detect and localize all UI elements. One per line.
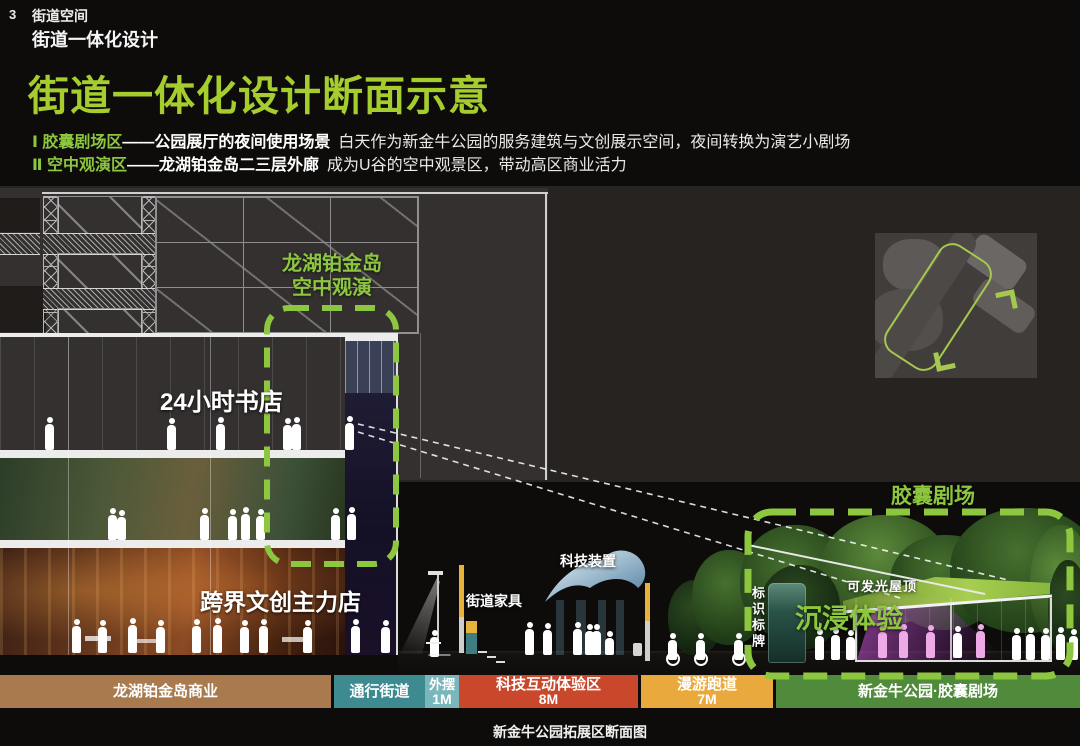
legend-label: 通行街道 xyxy=(349,684,409,699)
legend-segment-park: 新金牛公园·胶囊剧场 xyxy=(776,675,1080,708)
legend-size: 1M xyxy=(432,692,451,707)
person-silhouette xyxy=(167,425,176,450)
person-silhouette xyxy=(192,626,201,653)
cad-faint-line xyxy=(420,333,421,478)
person-silhouette xyxy=(345,423,354,450)
slide: 3 街道空间 街道一体化设计 街道一体化设计断面示意 Ⅰ 胶囊剧场区——公园展厅… xyxy=(0,0,1080,746)
street-lamp-head xyxy=(428,571,443,575)
person-silhouette xyxy=(216,424,225,450)
legend-segment-street: 通行街道 xyxy=(334,675,425,708)
cad-hatch-stub xyxy=(0,233,40,255)
page-title: 街道一体化设计断面示意 xyxy=(28,62,490,122)
person-silhouette xyxy=(240,627,249,653)
person-silhouette xyxy=(98,627,107,653)
cad-right-line xyxy=(545,192,547,480)
person-silhouette xyxy=(976,631,985,658)
person-silhouette xyxy=(72,626,81,653)
person-silhouette xyxy=(200,515,209,540)
site-plan-thumbnail xyxy=(875,233,1037,378)
person-silhouette xyxy=(1012,635,1021,660)
cad-hatch-band xyxy=(43,233,155,255)
legend-segment-outdoor: 外摆 1M xyxy=(425,675,459,708)
pole-base xyxy=(645,621,650,661)
floor-slab xyxy=(0,540,398,548)
yellow-pole xyxy=(645,583,650,621)
person-silhouette xyxy=(846,637,855,660)
floor-slab xyxy=(0,450,398,458)
floor-terrace xyxy=(0,458,345,540)
person-silhouette xyxy=(45,424,54,450)
person-silhouette xyxy=(128,625,137,653)
legend-label: 外摆 xyxy=(429,677,455,692)
person-silhouette xyxy=(241,514,250,540)
bullet-capsule-zone: Ⅰ 胶囊剧场区——公园展厅的夜间使用场景白天作为新金牛公园的服务建筑与文创展示空… xyxy=(32,128,850,152)
sky-viewing-label-line2: 空中观演 xyxy=(267,276,397,300)
trash-bin xyxy=(633,643,642,656)
capsule-theater-label: 胶囊剧场 xyxy=(868,480,998,510)
yellow-pole xyxy=(459,565,464,617)
person-silhouette xyxy=(1056,634,1065,660)
street-step xyxy=(487,656,496,658)
street-step xyxy=(496,661,505,663)
page-number: 3 xyxy=(9,7,16,22)
person-silhouette xyxy=(156,627,165,653)
street-step xyxy=(478,651,487,653)
legend-label: 科技互动体验区 xyxy=(496,677,601,692)
signage-label: 标识标牌 xyxy=(748,586,767,662)
immersive-experience-label: 沉浸体验 xyxy=(795,597,903,636)
person-silhouette xyxy=(303,627,312,653)
cad-top-line xyxy=(42,192,548,194)
legend-size: 8M xyxy=(539,692,558,707)
bullet-emphasis: ——龙湖铂金岛二三层外廊 xyxy=(127,157,319,174)
person-silhouette xyxy=(573,629,582,655)
person-silhouette xyxy=(953,633,962,658)
tech-installation-label: 科技装置 xyxy=(560,551,616,571)
bullet-zone-label: Ⅱ 空中观演区 xyxy=(32,157,127,174)
facade-grid-line xyxy=(68,337,69,655)
person-silhouette xyxy=(831,635,840,660)
section-caption: 新金牛公园拓展区断面图 xyxy=(410,722,730,742)
bollard-cap xyxy=(466,621,477,633)
person-silhouette xyxy=(259,626,268,653)
site-plan-corner-mark xyxy=(933,349,956,372)
person-silhouette xyxy=(926,632,935,658)
legend-segment-tech: 科技互动体验区 8M xyxy=(459,675,638,708)
person-silhouette xyxy=(525,629,534,655)
person-silhouette xyxy=(283,425,292,450)
bicycle-wheel xyxy=(666,652,680,666)
section-label: 街道空间 xyxy=(32,6,88,26)
legend-segment-runway: 漫游跑道 7M xyxy=(641,675,773,708)
person-silhouette xyxy=(605,638,614,655)
street-furniture-label: 街道家具 xyxy=(466,591,522,611)
site-plan-corner-mark xyxy=(995,289,1018,312)
tower-glazing xyxy=(345,341,398,393)
person-silhouette xyxy=(256,516,265,540)
person-silhouette xyxy=(381,627,390,653)
legend-label: 龙湖铂金岛商业 xyxy=(113,684,218,699)
sky-viewing-label-line1: 龙湖铂金岛 xyxy=(267,252,397,276)
bicycle-wheel xyxy=(732,652,746,666)
tech-light-beam xyxy=(616,600,624,655)
person-silhouette xyxy=(1041,635,1050,660)
tower-cap xyxy=(345,333,398,341)
bicycle-wheel xyxy=(694,652,708,666)
bullet-zone-label: Ⅰ 胶囊剧场区 xyxy=(32,134,122,151)
person-silhouette xyxy=(351,626,360,653)
subsection-label: 街道一体化设计 xyxy=(32,26,158,52)
person-silhouette xyxy=(1069,636,1078,660)
tower-edge-line xyxy=(396,341,398,655)
cad-window-row xyxy=(57,196,143,235)
stool xyxy=(426,642,441,644)
person-silhouette xyxy=(815,636,824,660)
sky-viewing-label: 龙湖铂金岛 空中观演 xyxy=(267,252,397,300)
person-silhouette xyxy=(292,424,301,450)
legend-label: 新金牛公园·胶囊剧场 xyxy=(858,684,998,699)
luminous-roof-label: 可发光屋顶 xyxy=(847,576,917,595)
person-silhouette xyxy=(331,515,340,540)
bullet-text: 成为U谷的空中观景区，带动高区商业活力 xyxy=(327,157,627,174)
legend-label: 漫游跑道 xyxy=(677,677,737,692)
cad-hatch-band xyxy=(43,288,155,310)
bookstore-label: 24小时书店 xyxy=(160,382,283,417)
person-silhouette xyxy=(213,625,222,653)
pole-base xyxy=(459,617,464,653)
bullet-emphasis: ——公园展厅的夜间使用场景 xyxy=(122,134,330,151)
person-silhouette xyxy=(430,637,439,657)
person-silhouette xyxy=(228,516,237,540)
legend-segment-commercial: 龙湖铂金岛商业 xyxy=(0,675,331,708)
flagship-label: 跨界文创主力店 xyxy=(200,583,361,617)
cad-block xyxy=(0,286,46,332)
legend-size: 7M xyxy=(697,692,716,707)
tech-light-beam xyxy=(556,600,564,655)
person-silhouette xyxy=(1026,634,1035,660)
cad-block xyxy=(0,198,40,232)
bullet-text: 白天作为新金牛公园的服务建筑与文创展示空间，夜间转换为演艺小剧场 xyxy=(338,134,850,151)
person-silhouette xyxy=(117,517,126,540)
bullet-sky-zone: Ⅱ 空中观演区——龙湖铂金岛二三层外廊成为U谷的空中观景区，带动高区商业活力 xyxy=(32,151,627,175)
person-silhouette xyxy=(108,515,117,540)
cad-window-row xyxy=(57,308,143,334)
person-silhouette xyxy=(585,631,594,655)
person-silhouette xyxy=(543,630,552,655)
cad-window-row xyxy=(57,253,143,290)
person-silhouette xyxy=(347,514,356,540)
